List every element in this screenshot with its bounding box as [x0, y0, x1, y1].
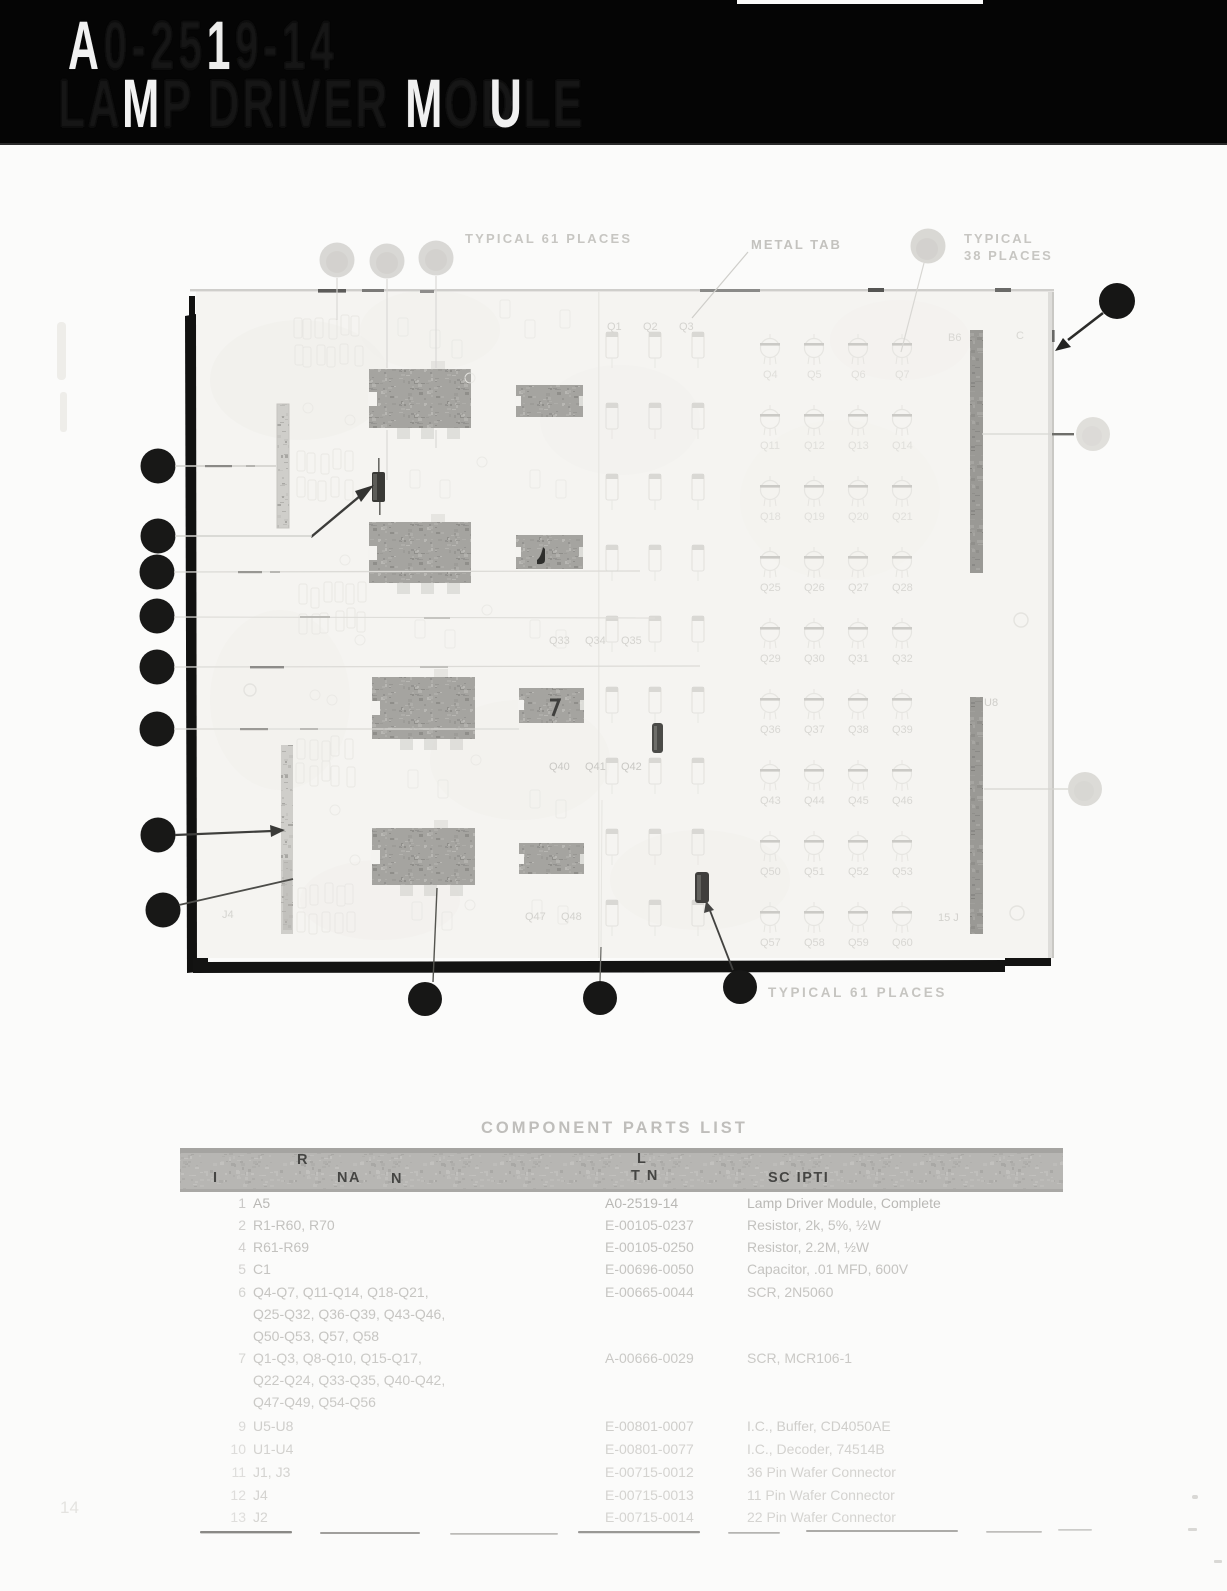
svg-text:Resistor, 2.2M, ½W: Resistor, 2.2M, ½W	[747, 1239, 870, 1255]
svg-text:COMPONENT PARTS LIST: COMPONENT PARTS LIST	[481, 1119, 748, 1137]
svg-text:C: C	[1016, 330, 1024, 342]
svg-text:12: 12	[230, 1487, 246, 1503]
svg-text:4: 4	[238, 1239, 246, 1255]
svg-text:SCR, 2N5060: SCR, 2N5060	[747, 1284, 834, 1300]
svg-text:Q37: Q37	[804, 724, 825, 736]
svg-text:Q22-Q24, Q33-Q35, Q40-Q42,: Q22-Q24, Q33-Q35, Q40-Q42,	[253, 1372, 445, 1388]
svg-text:Q50: Q50	[760, 866, 781, 878]
svg-text:E-00105-0237: E-00105-0237	[605, 1217, 694, 1233]
svg-text:E-00801-0007: E-00801-0007	[605, 1418, 694, 1434]
svg-text:SCR, MCR106-1: SCR, MCR106-1	[747, 1350, 852, 1366]
svg-text:J4: J4	[253, 1487, 268, 1503]
svg-text:Q59: Q59	[848, 937, 869, 949]
svg-text:9: 9	[238, 1418, 246, 1434]
svg-text:Q25-Q32, Q36-Q39, Q43-Q46,: Q25-Q32, Q36-Q39, Q43-Q46,	[253, 1306, 445, 1322]
svg-text:Q45: Q45	[848, 795, 869, 807]
svg-text:TYPICAL 61 PLACES: TYPICAL 61 PLACES	[465, 231, 632, 246]
svg-text:J2: J2	[253, 1509, 268, 1525]
svg-text:Q30: Q30	[804, 653, 825, 665]
svg-text:Q3: Q3	[679, 321, 694, 333]
svg-text:Q51: Q51	[804, 866, 825, 878]
svg-text:Q31: Q31	[848, 653, 869, 665]
svg-text:E-00665-0044: E-00665-0044	[605, 1284, 694, 1300]
svg-text:Q42: Q42	[621, 761, 642, 773]
svg-text:B6: B6	[948, 332, 961, 344]
svg-text:R61-R69: R61-R69	[253, 1239, 309, 1255]
svg-text:Q1-Q3, Q8-Q10, Q15-Q17,: Q1-Q3, Q8-Q10, Q15-Q17,	[253, 1350, 422, 1366]
svg-text:13: 13	[230, 1509, 246, 1525]
svg-text:Resistor, 2k, 5%, ½W: Resistor, 2k, 5%, ½W	[747, 1217, 882, 1233]
svg-text:22 Pin Wafer Connector: 22 Pin Wafer Connector	[747, 1509, 896, 1525]
svg-text:10: 10	[230, 1441, 246, 1457]
svg-text:TYPICAL 61 PLACES: TYPICAL 61 PLACES	[768, 985, 947, 1000]
svg-text:TYPICAL: TYPICAL	[964, 231, 1034, 246]
svg-text:L: L	[637, 1151, 647, 1167]
svg-text:Q4: Q4	[763, 369, 778, 381]
svg-text:Q53: Q53	[892, 866, 913, 878]
svg-text:A-00666-0029: A-00666-0029	[605, 1350, 694, 1366]
svg-text:38 PLACES: 38 PLACES	[964, 248, 1053, 263]
svg-text:Q44: Q44	[804, 795, 825, 807]
svg-text:E-00105-0250: E-00105-0250	[605, 1239, 694, 1255]
svg-text:Q6: Q6	[851, 369, 866, 381]
svg-text:R1-R60, R70: R1-R60, R70	[253, 1217, 335, 1233]
svg-text:LAMP DRIVER MODULE: LAMP DRIVER MODULE	[58, 65, 586, 142]
svg-text:U8: U8	[984, 697, 998, 709]
svg-text:Q35: Q35	[621, 635, 642, 647]
svg-text:1: 1	[238, 1195, 246, 1211]
svg-text:R: R	[297, 1152, 309, 1168]
svg-text:Lamp Driver Module, Complete: Lamp Driver Module, Complete	[747, 1195, 941, 1211]
svg-text:Q38: Q38	[848, 724, 869, 736]
svg-text:Q46: Q46	[892, 795, 913, 807]
svg-text:J1, J3: J1, J3	[253, 1464, 291, 1480]
svg-text:Q5: Q5	[807, 369, 822, 381]
svg-text:Q43: Q43	[760, 795, 781, 807]
svg-text:7: 7	[238, 1350, 246, 1366]
svg-text:Q7: Q7	[895, 369, 910, 381]
svg-text:Q1: Q1	[607, 321, 622, 333]
svg-text:Q26: Q26	[804, 582, 825, 594]
svg-text:Q60: Q60	[892, 937, 913, 949]
svg-text:Q57: Q57	[760, 937, 781, 949]
svg-text:Q14: Q14	[892, 440, 913, 452]
svg-text:Capacitor, .01 MFD, 600V: Capacitor, .01 MFD, 600V	[747, 1261, 909, 1277]
svg-text:A0-2519-14: A0-2519-14	[605, 1195, 678, 1211]
svg-text:Q27: Q27	[848, 582, 869, 594]
svg-text:5: 5	[238, 1261, 246, 1277]
svg-text:Q40: Q40	[549, 761, 570, 773]
svg-text:Q41: Q41	[585, 761, 606, 773]
svg-text:T N: T N	[631, 1168, 659, 1184]
svg-text:Q29: Q29	[760, 653, 781, 665]
svg-text:E-00715-0014: E-00715-0014	[605, 1509, 694, 1525]
svg-text:11: 11	[231, 1464, 246, 1480]
svg-text:Q39: Q39	[892, 724, 913, 736]
svg-text:U5-U8: U5-U8	[253, 1418, 294, 1434]
svg-text:Q47-Q49, Q54-Q56: Q47-Q49, Q54-Q56	[253, 1394, 376, 1410]
svg-text:E-00715-0013: E-00715-0013	[605, 1487, 694, 1503]
svg-text:Q20: Q20	[848, 511, 869, 523]
svg-text:C1: C1	[253, 1261, 271, 1277]
svg-text:Q28: Q28	[892, 582, 913, 594]
svg-text:E-00715-0012: E-00715-0012	[605, 1464, 694, 1480]
svg-text:Q36: Q36	[760, 724, 781, 736]
svg-text:Q58: Q58	[804, 937, 825, 949]
svg-text:Q4-Q7, Q11-Q14, Q18-Q21,: Q4-Q7, Q11-Q14, Q18-Q21,	[253, 1284, 429, 1300]
svg-text:Q34: Q34	[585, 635, 606, 647]
svg-text:Q2: Q2	[643, 321, 658, 333]
svg-text:NA: NA	[337, 1170, 361, 1186]
svg-text:15 J: 15 J	[938, 912, 959, 924]
svg-text:Q11: Q11	[760, 440, 780, 452]
svg-text:Q33: Q33	[549, 635, 570, 647]
svg-text:SC IPTI: SC IPTI	[768, 1170, 829, 1186]
svg-text:U1-U4: U1-U4	[253, 1441, 294, 1457]
svg-text:Q52: Q52	[848, 866, 869, 878]
svg-text:2: 2	[238, 1217, 246, 1233]
svg-text:I.C., Decoder, 74514B: I.C., Decoder, 74514B	[747, 1441, 885, 1457]
svg-text:Q47: Q47	[525, 911, 546, 923]
svg-text:A5: A5	[253, 1195, 270, 1211]
svg-text:6: 6	[238, 1284, 246, 1300]
svg-text:Q13: Q13	[848, 440, 869, 452]
svg-text:Q21: Q21	[892, 511, 913, 523]
svg-text:METAL TAB: METAL TAB	[751, 237, 842, 252]
svg-text:Q32: Q32	[892, 653, 913, 665]
svg-text:Q12: Q12	[804, 440, 825, 452]
svg-text:J4: J4	[222, 909, 234, 921]
svg-text:11 Pin Wafer Connector: 11 Pin Wafer Connector	[747, 1487, 895, 1503]
svg-text:Q25: Q25	[760, 582, 781, 594]
svg-text:Q50-Q53, Q57, Q58: Q50-Q53, Q57, Q58	[253, 1328, 379, 1344]
svg-text:E-00801-0077: E-00801-0077	[605, 1441, 694, 1457]
svg-text:E-00696-0050: E-00696-0050	[605, 1261, 694, 1277]
svg-text:Q19: Q19	[804, 511, 825, 523]
svg-text:36 Pin Wafer Connector: 36 Pin Wafer Connector	[747, 1464, 896, 1480]
svg-text:I.C., Buffer, CD4050AE: I.C., Buffer, CD4050AE	[747, 1418, 891, 1434]
svg-text:I: I	[213, 1170, 219, 1186]
svg-text:Q48: Q48	[561, 911, 582, 923]
svg-text:14: 14	[60, 1498, 79, 1517]
svg-text:Q18: Q18	[760, 511, 781, 523]
svg-text:N: N	[391, 1171, 403, 1187]
